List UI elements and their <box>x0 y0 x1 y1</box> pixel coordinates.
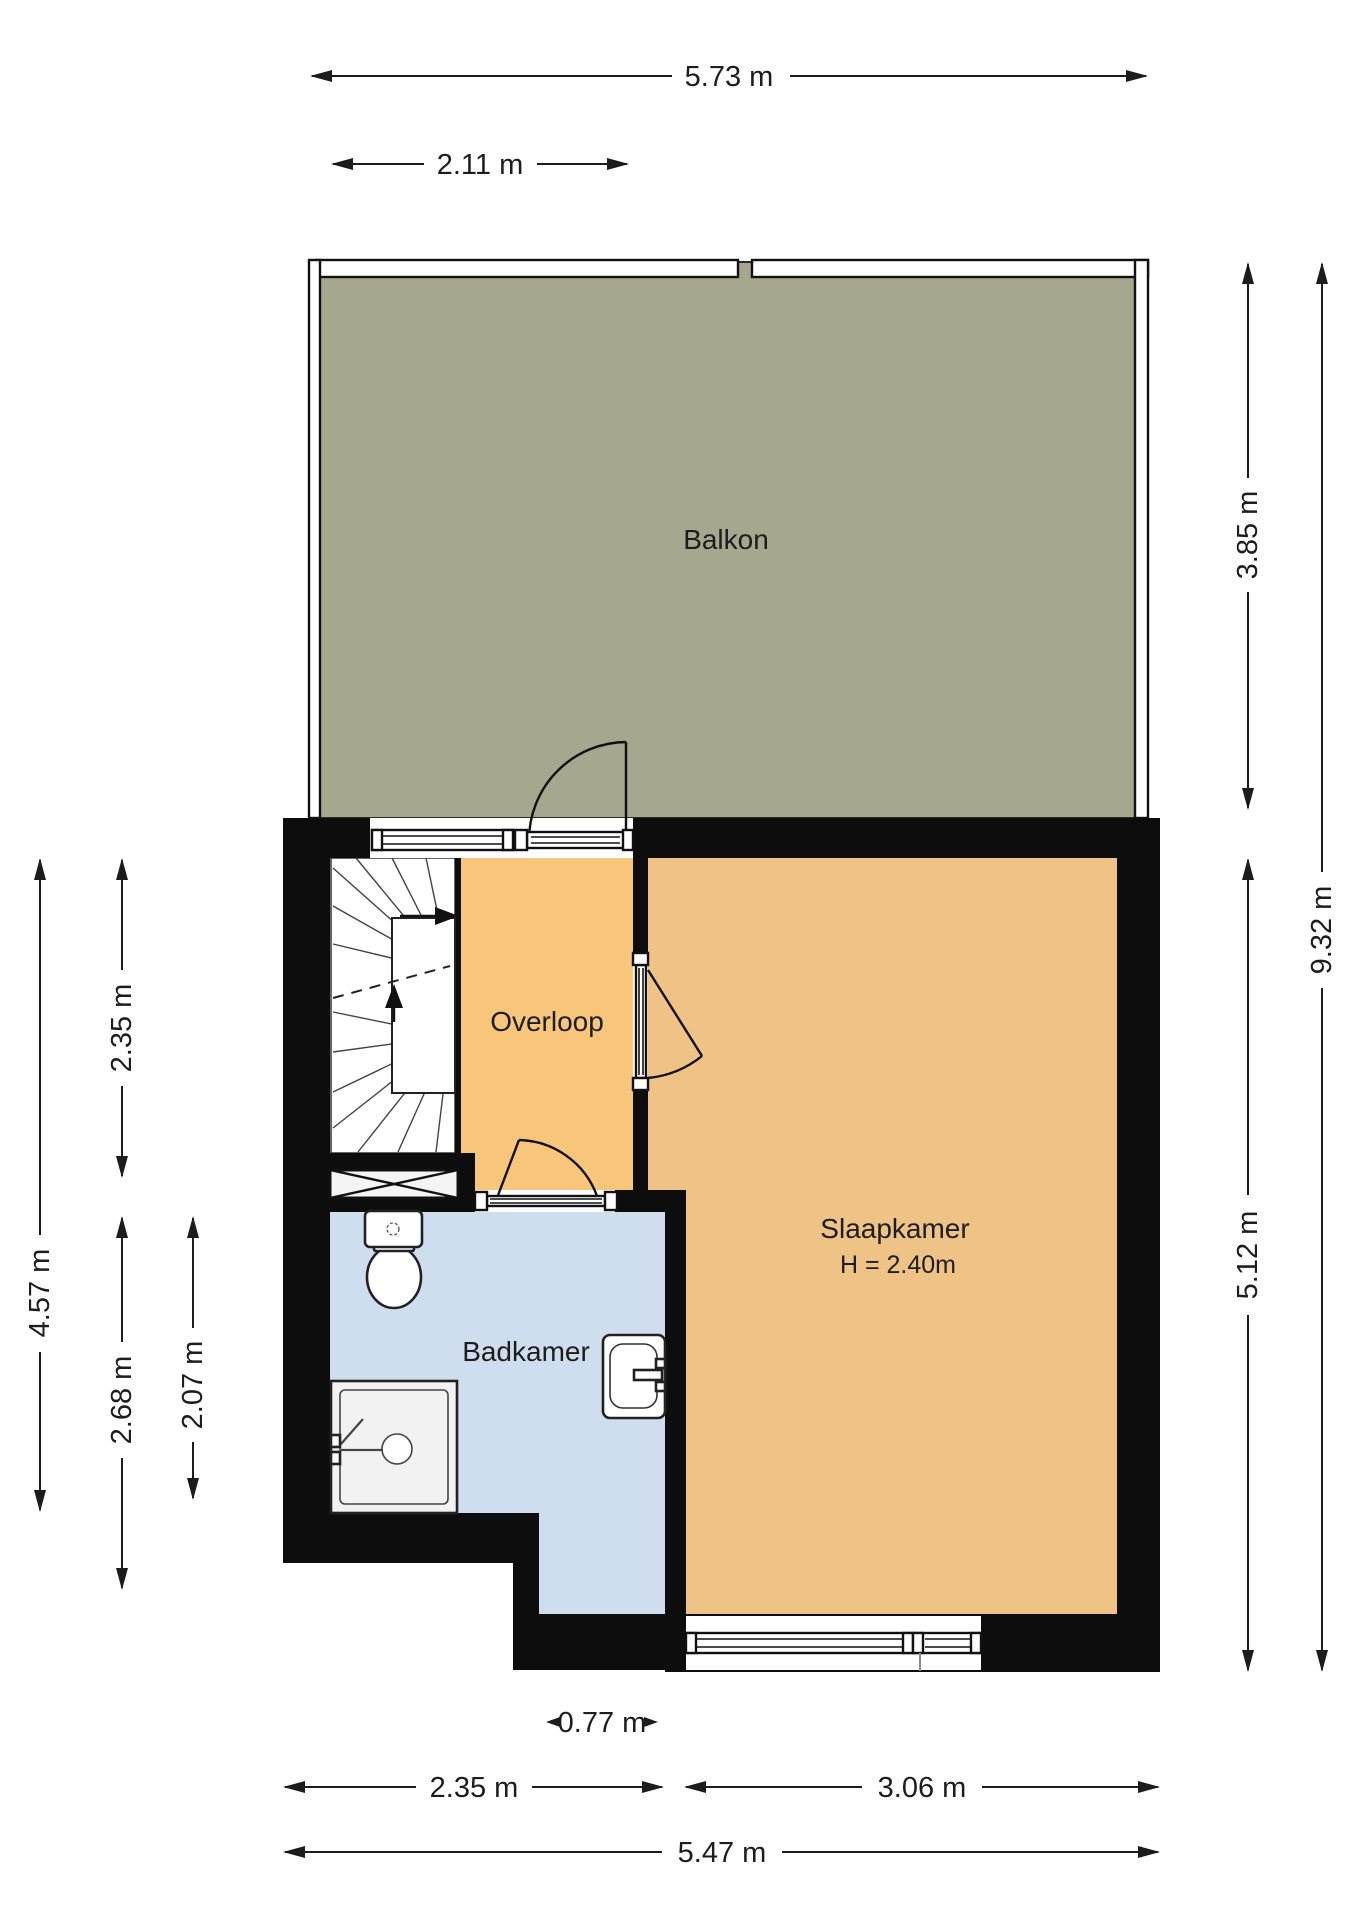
bathroom-notch-floor <box>539 1513 665 1614</box>
svg-text:2.35 m: 2.35 m <box>106 984 138 1073</box>
floor-plan-canvas: Balkon Overloop Slaapkamer H = 2.40m Bad… <box>0 0 1358 1920</box>
landing-label: Overloop <box>490 1006 604 1037</box>
svg-text:9.32 m: 9.32 m <box>1306 886 1338 975</box>
door-frame-cap <box>515 830 527 850</box>
balcony-railing-top-right <box>752 260 1148 277</box>
door-frame-cap <box>633 1078 648 1090</box>
window-mullion <box>903 1633 913 1653</box>
dim-right-total: 9.32 m <box>1306 262 1338 1672</box>
door-frame-cap <box>605 1192 617 1210</box>
svg-text:3.06 m: 3.06 m <box>878 1772 967 1804</box>
wall-landing-bedroom-lower <box>633 1090 648 1190</box>
svg-text:2.11 m: 2.11 m <box>437 149 524 181</box>
dim-bottom-bedroom: 3.06 m <box>684 1772 1160 1804</box>
window-cap <box>503 830 513 850</box>
door-frame-cap <box>623 830 633 850</box>
wall-notch-bottom <box>513 1614 686 1670</box>
wall-top-right <box>648 818 1160 858</box>
door-leaf-closed <box>527 832 624 848</box>
svg-text:4.57 m: 4.57 m <box>24 1249 56 1338</box>
sink-tap-knob <box>656 1382 665 1391</box>
balcony-window <box>372 830 513 850</box>
sink-faucet <box>634 1370 662 1380</box>
shower <box>331 1381 457 1513</box>
door-frame-cap <box>633 953 648 965</box>
svg-text:3.85 m: 3.85 m <box>1232 491 1264 580</box>
window-mullion <box>913 1633 923 1653</box>
wall-bathroom-top-right <box>615 1190 686 1212</box>
svg-text:5.47 m: 5.47 m <box>678 1837 767 1869</box>
shower-drain <box>382 1434 412 1464</box>
svg-text:5.12 m: 5.12 m <box>1232 1211 1264 1300</box>
svg-text:5.73 m: 5.73 m <box>685 61 774 93</box>
window-cap <box>686 1633 696 1653</box>
dim-top-total: 5.73 m <box>310 61 1148 93</box>
dim-left-bathroom-inner: 2.07 m <box>177 1216 209 1500</box>
wall-right <box>1117 818 1160 1672</box>
window-cap <box>971 1633 981 1653</box>
door-leaf-closed <box>487 1196 605 1206</box>
dim-right-balcony: 3.85 m <box>1232 262 1264 810</box>
door-frame-cap <box>475 1192 487 1210</box>
toilet-bowl <box>367 1246 421 1308</box>
balcony-label: Balkon <box>683 524 769 555</box>
floor-plan-page: Balkon Overloop Slaapkamer H = 2.40m Bad… <box>0 0 1358 1920</box>
dim-bottom-bathroom: 2.35 m <box>283 1772 664 1804</box>
sink <box>603 1335 665 1418</box>
sink-tap-knob <box>656 1359 665 1368</box>
door-leaf-closed <box>636 965 646 1078</box>
window-frame <box>372 830 513 850</box>
understairs-void <box>330 1170 458 1198</box>
balcony-railing-left <box>309 260 320 818</box>
svg-text:0.77 m: 0.77 m <box>558 1707 647 1739</box>
dim-bottom-notch: 0.77 m <box>546 1707 658 1739</box>
svg-text:2.35 m: 2.35 m <box>430 1772 519 1804</box>
shower-mixer-knob <box>331 1452 340 1464</box>
window-cap <box>372 830 382 850</box>
bedroom-label: Slaapkamer <box>820 1213 969 1244</box>
toilet-tank <box>365 1211 422 1247</box>
svg-text:2.68 m: 2.68 m <box>106 1356 138 1445</box>
wall-landing-bedroom-upper <box>633 858 648 955</box>
dim-top-left-section: 2.11 m <box>331 149 629 181</box>
bathroom-label: Badkamer <box>462 1336 590 1367</box>
dim-left-total: 4.57 m <box>24 858 56 1512</box>
window-frame <box>686 1633 981 1653</box>
wall-bathroom-bottom <box>283 1513 539 1563</box>
shower-mixer-knob <box>331 1435 340 1447</box>
dim-left-stairwell: 2.35 m <box>106 858 138 1178</box>
svg-text:2.07 m: 2.07 m <box>177 1341 209 1430</box>
bedroom-ceiling-height-label: H = 2.40m <box>840 1251 956 1279</box>
dim-right-bedroom: 5.12 m <box>1232 858 1264 1672</box>
dim-bottom-total: 5.47 m <box>283 1837 1160 1869</box>
dim-left-bathroom-outer: 2.68 m <box>106 1216 138 1590</box>
balcony-railing-top-left <box>316 260 738 277</box>
wall-bathroom-bedroom <box>665 1212 686 1672</box>
toilet <box>365 1211 422 1308</box>
balcony-railing-right <box>1135 260 1148 818</box>
